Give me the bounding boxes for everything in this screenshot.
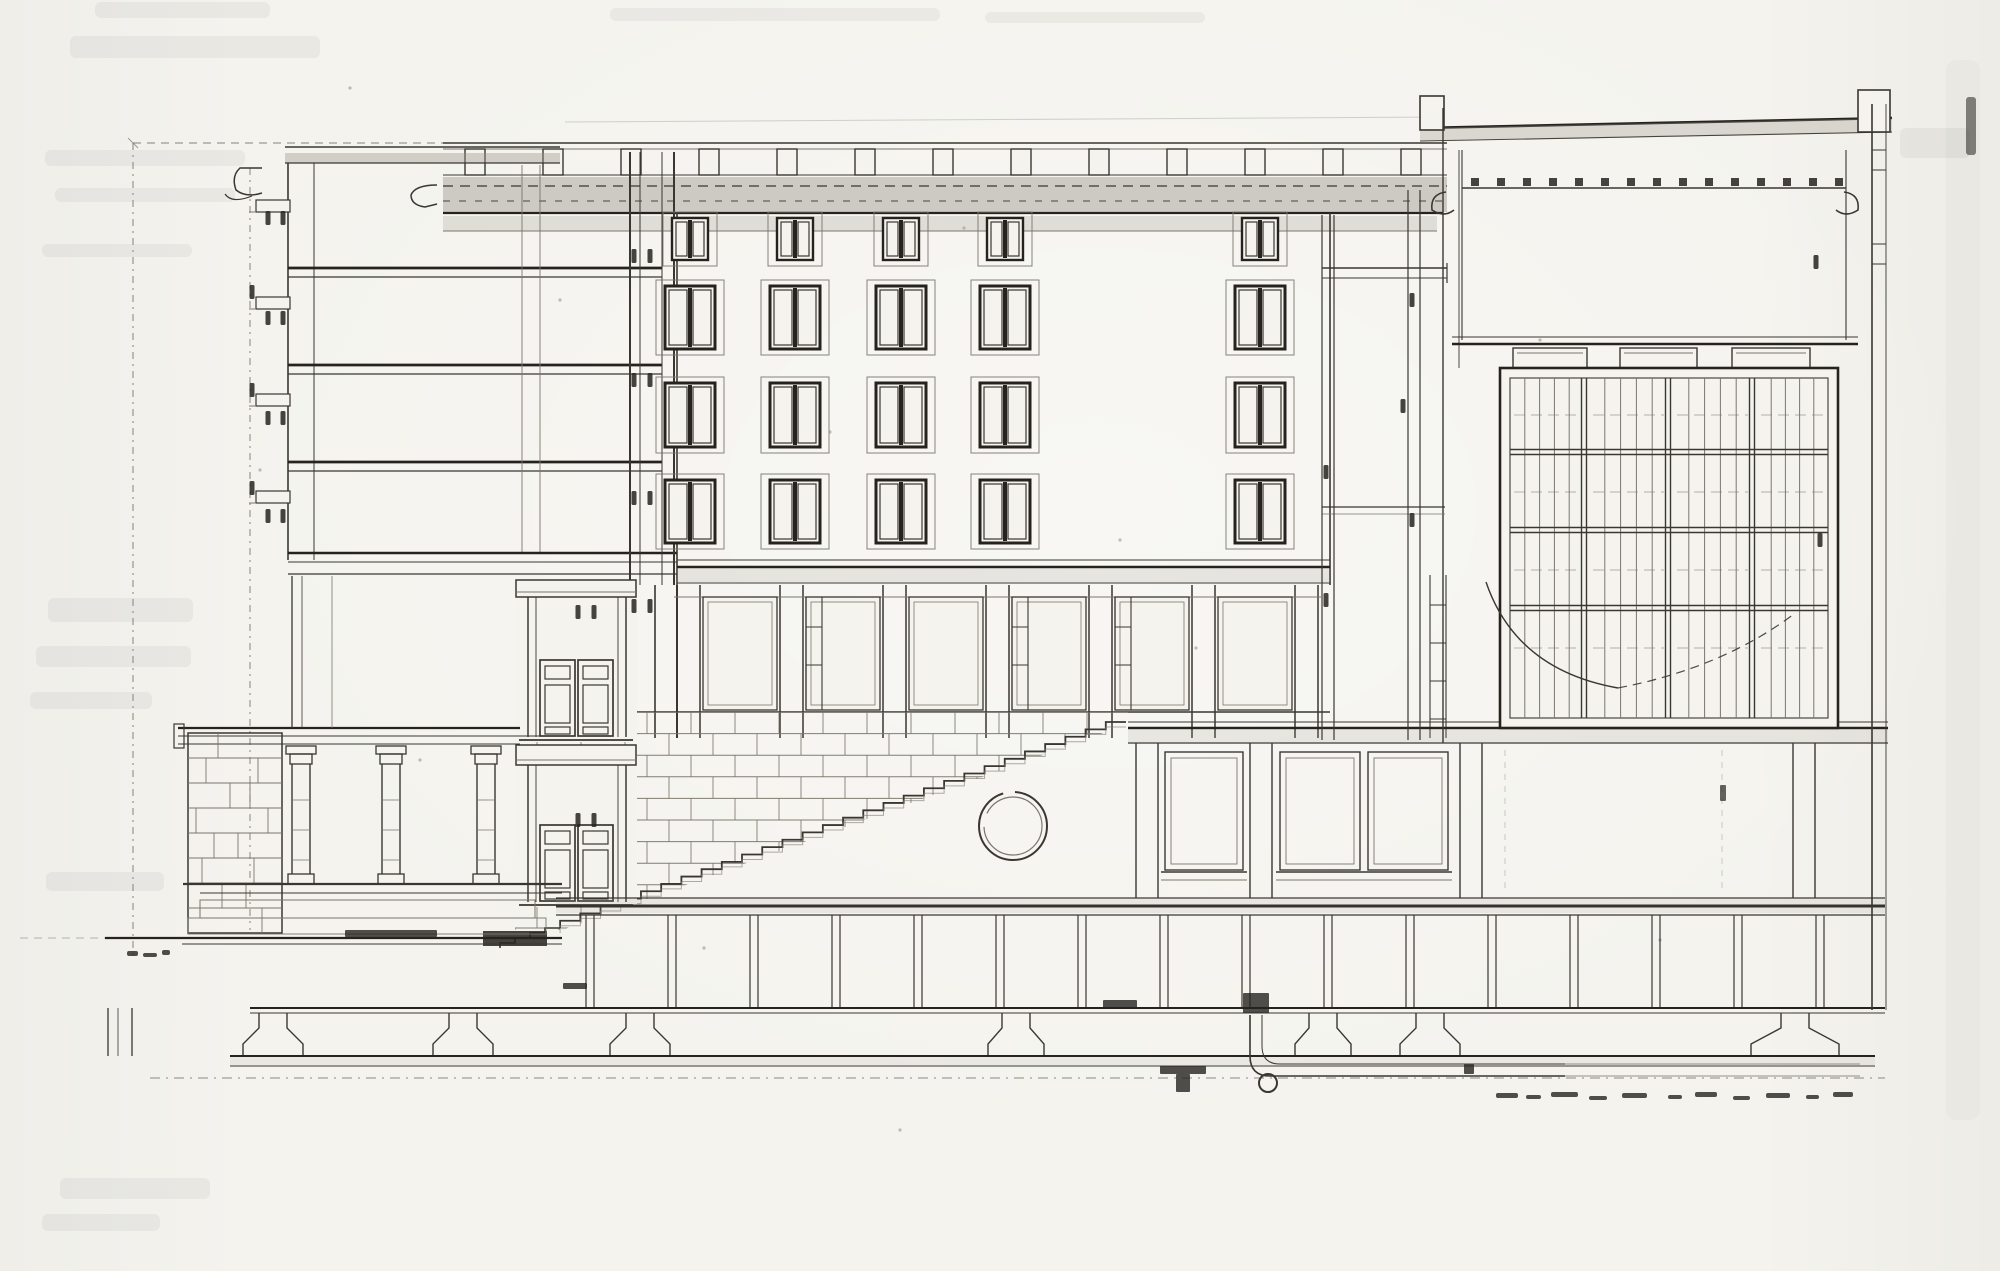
entrance-doors — [515, 580, 637, 907]
building-section-drawing: Scanned architectural cross-section draw… — [0, 0, 2000, 1271]
roof-parapet — [411, 143, 1447, 231]
right-lower-hall — [1128, 722, 1888, 898]
facade-windows — [656, 212, 1294, 549]
scanned-book-page: Scanned architectural cross-section draw… — [0, 0, 2000, 1271]
colonnade-terrace — [174, 576, 562, 934]
reference-lines — [20, 117, 1445, 958]
ground-slab — [105, 898, 1885, 944]
circular-window — [979, 792, 1047, 860]
glazed-grid-window — [1500, 368, 1838, 728]
foundation — [108, 915, 1885, 1100]
